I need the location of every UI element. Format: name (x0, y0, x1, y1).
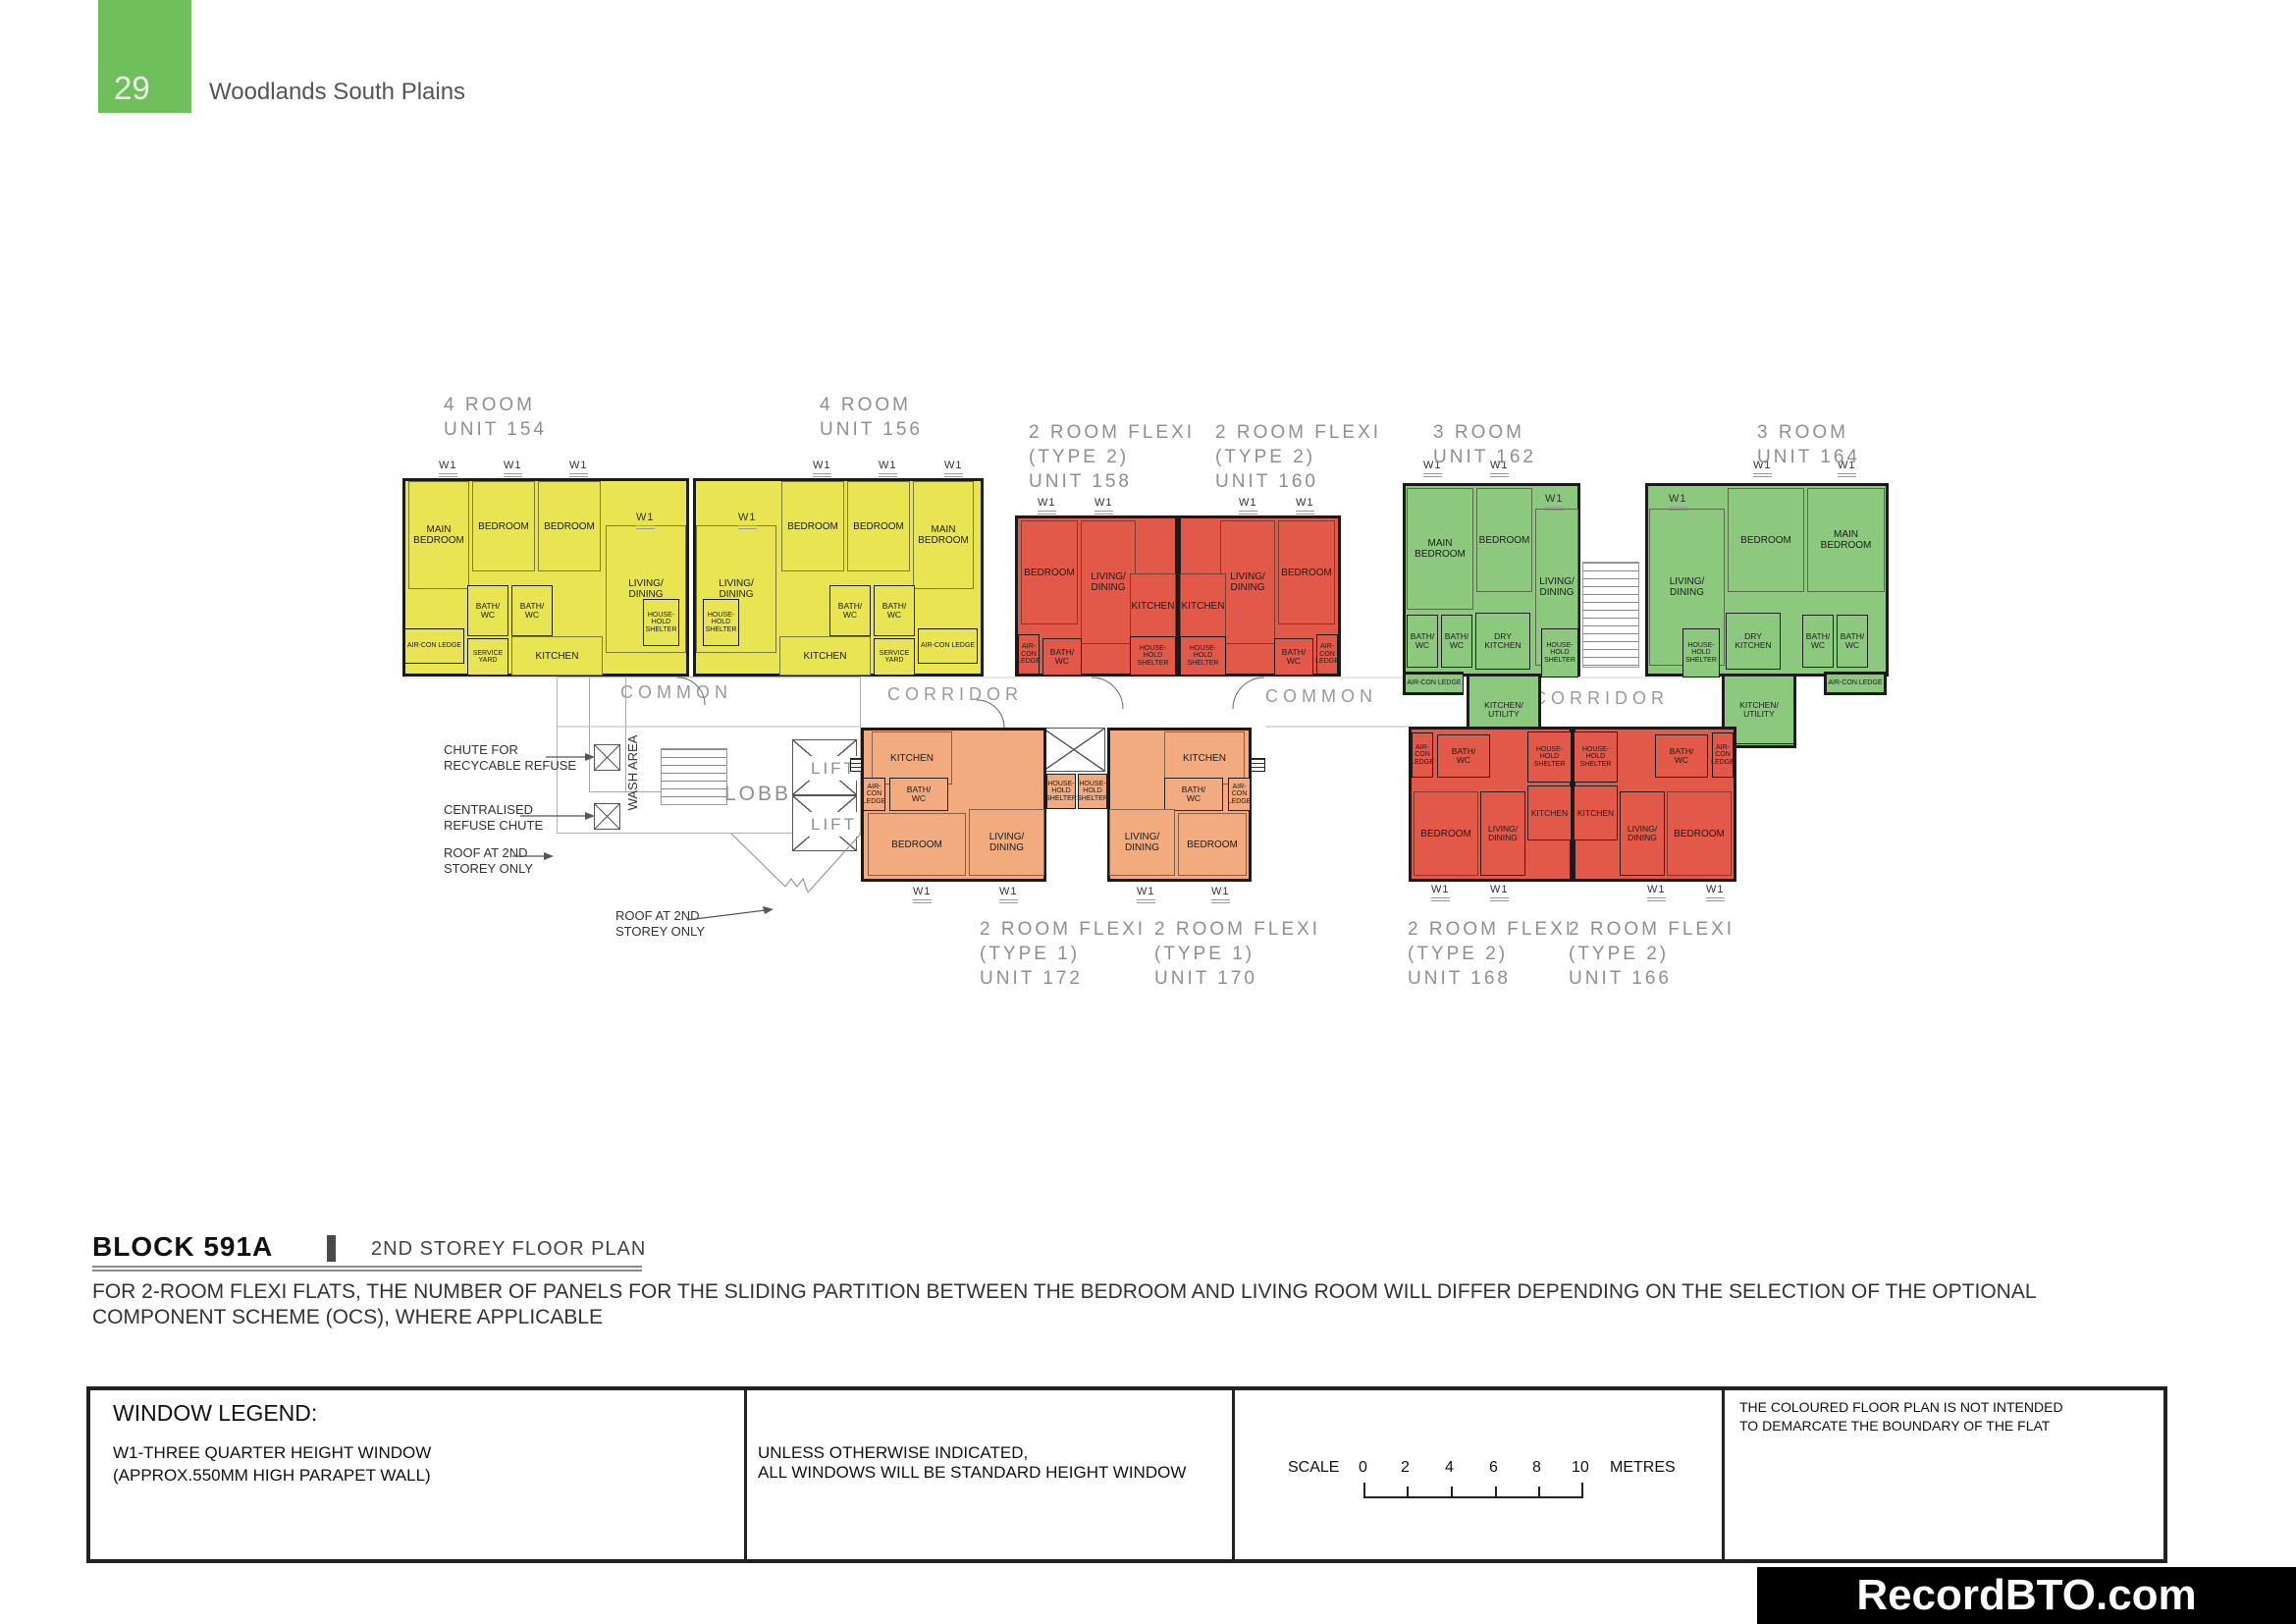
unit-156-room-bedroom: BEDROOM (781, 481, 844, 571)
floor-plan: COMMON CORRIDOR COMMON CORRIDOR WASH ARE… (0, 0, 2296, 1080)
scale-bar-tick (1495, 1487, 1497, 1498)
window-marker-w1: W1 (1669, 493, 1687, 511)
unit-162-room-dry-kitchen: DRY KITCHEN (1475, 613, 1530, 670)
unit-166-room-house-hold-shelter: HOUSE- HOLD SHELTER (1574, 731, 1618, 783)
unit-164-room-bedroom: BEDROOM (1728, 488, 1804, 592)
unit-168-room-kitchen: KITCHEN (1527, 785, 1572, 840)
unit-158-label: 2 ROOM FLEXI (TYPE 2) UNIT 158 (1029, 420, 1195, 494)
window-marker-w1: W1 (1431, 884, 1450, 901)
unit-170-room-bedroom: BEDROOM (1178, 813, 1247, 876)
scale-bar (1363, 1483, 1583, 1498)
brochure-page: 29 Woodlands South Plains COMMON CORRIDO… (0, 0, 2296, 1624)
unit-156-room-main-bedroom: MAIN BEDROOM (913, 481, 974, 589)
unit-160-room-house-hold-shelter: HOUSE- HOLD SHELTER (1180, 636, 1226, 676)
storey-plan-title: 2ND STOREY FLOOR PLAN (371, 1238, 646, 1261)
unit-172-room-bedroom: BEDROOM (868, 813, 966, 876)
unit-156-room-bath-wc: BATH/ WC (829, 585, 871, 636)
unit-172-room-air-con-ledge: AIR- CON LEDGE (863, 778, 885, 811)
unit-162-room-bedroom: BEDROOM (1476, 488, 1532, 592)
window-marker-w1: W1 (913, 886, 932, 903)
window-marker-w1: W1 (1490, 884, 1509, 901)
scale-bar-tick (1538, 1487, 1540, 1498)
scale-unit: METRES (1610, 1459, 1676, 1477)
scale-tick-label: 0 (1359, 1459, 1367, 1477)
window-marker-w1: W1 (504, 460, 522, 477)
unit-154-room-bedroom: BEDROOM (472, 481, 535, 571)
unit-154-room-bath-wc: BATH/ WC (467, 585, 508, 636)
unit-160-room-bedroom: BEDROOM (1278, 520, 1335, 624)
unit-164-room-dry-kitchen: DRY KITCHEN (1726, 613, 1781, 670)
unit-156-room-kitchen: KITCHEN (779, 636, 871, 676)
window-marker-w1: W1 (1239, 497, 1257, 514)
unit-168-room-house-hold-shelter: HOUSE- HOLD SHELTER (1527, 731, 1572, 783)
unit-160-room-kitchen: KITCHEN (1180, 573, 1226, 638)
window-legend-w1-line2: (APPROX.550MM HIGH PARAPET WALL) (113, 1466, 431, 1486)
watermark-text: RecordBTO.com (1856, 1571, 2196, 1620)
unit-154-room-kitchen: KITCHEN (511, 636, 603, 676)
unit-166-room-living-dining: LIVING/ DINING (1620, 791, 1665, 876)
unit-168-room-bath-wc: BATH/ WC (1437, 734, 1490, 778)
unit-172-room-kitchen: KITCHEN (872, 731, 952, 785)
unit-156-room-house-hold-shelter: HOUSE- HOLD SHELTER (703, 599, 739, 646)
window-marker-w1: W1 (569, 460, 588, 477)
unit-168-room-air-con-ledge: AIR- CON LEDGE (1412, 732, 1433, 778)
window-marker-w1: W1 (944, 460, 963, 477)
unit-154-room-house-hold-shelter: HOUSE- HOLD SHELTER (643, 599, 679, 646)
unit-168-label: 2 ROOM FLEXI (TYPE 2) UNIT 168 (1408, 917, 1574, 991)
unit-170-room-living-dining: LIVING/ DINING (1109, 809, 1175, 876)
unit-162-room-bath-wc: BATH/ WC (1407, 615, 1438, 668)
window-marker-w1: W1 (1296, 497, 1314, 514)
unit-154-room-main-bedroom: MAIN BEDROOM (408, 481, 469, 589)
window-marker-w1: W1 (1211, 886, 1230, 903)
window-marker-w1: W1 (439, 460, 457, 477)
scale-bar-tick (1451, 1487, 1453, 1498)
unit-158-room-air-con-ledge: AIR- CON LEDGE (1018, 634, 1040, 675)
window-marker-w1: W1 (738, 512, 757, 529)
unit-164-room-house-hold-shelter: HOUSE- HOLD SHELTER (1682, 628, 1720, 677)
unit-162-label: 3 ROOM UNIT 162 (1433, 420, 1536, 469)
unit-172-label: 2 ROOM FLEXI (TYPE 1) UNIT 172 (980, 917, 1146, 991)
unit-158-room-bath-wc: BATH/ WC (1042, 638, 1082, 676)
unit-156-room-bedroom: BEDROOM (847, 481, 910, 571)
unit-158-room-house-hold-shelter: HOUSE- HOLD SHELTER (1130, 636, 1176, 676)
window-marker-w1: W1 (1137, 886, 1155, 903)
unit-154-label: 4 ROOM UNIT 154 (444, 393, 547, 442)
unit-172-room-bath-wc: BATH/ WC (889, 778, 948, 811)
unit-156-room-bath-wc: BATH/ WC (874, 585, 915, 636)
unit-158-room-bedroom: BEDROOM (1021, 520, 1078, 624)
unit-156-room-service-yard: SERVICE YARD (874, 638, 915, 676)
window-marker-w1: W1 (999, 886, 1018, 903)
ocs-note: FOR 2-ROOM FLEXI FLATS, THE NUMBER OF PA… (92, 1279, 2154, 1330)
window-marker-w1: W1 (879, 460, 897, 477)
unit-166-room-kitchen: KITCHEN (1574, 785, 1618, 840)
unit-162-room-air-con-ledge: AIR-CON LEDGE (1405, 674, 1464, 693)
window-marker-w1: W1 (1038, 497, 1056, 514)
unit-160-room-bath-wc: BATH/ WC (1274, 638, 1313, 676)
unit-154-room-air-con-ledge: AIR-CON LEDGE (404, 628, 464, 664)
unit-154-room-service-yard: SERVICE YARD (467, 638, 508, 676)
unit-156-room-air-con-ledge: AIR-CON LEDGE (918, 628, 978, 664)
unit-154-room-bedroom: BEDROOM (538, 481, 601, 571)
window-marker-w1: W1 (1706, 884, 1725, 901)
legend-divider (1722, 1386, 1725, 1563)
watermark-banner: RecordBTO.com (1757, 1567, 2296, 1624)
scale-bar-tick (1407, 1487, 1409, 1498)
unit-164-room-main-bedroom: MAIN BEDROOM (1807, 488, 1885, 592)
unit-170-room-kitchen: KITCHEN (1164, 731, 1245, 785)
unit-170-room-air-con-ledge: AIR- CON LEDGE (1228, 778, 1251, 811)
scale-tick-label: 4 (1445, 1459, 1454, 1477)
unit-166-label: 2 ROOM FLEXI (TYPE 2) UNIT 166 (1569, 917, 1735, 991)
unit-170-room-bath-wc: BATH/ WC (1164, 778, 1223, 811)
scale-tick-label: 10 (1572, 1459, 1589, 1477)
block-title: BLOCK 591A (92, 1231, 273, 1263)
window-marker-w1: W1 (1545, 493, 1564, 511)
scale-tick-label: 6 (1489, 1459, 1498, 1477)
window-marker-w1: W1 (1095, 497, 1113, 514)
unit-164-room-bath-wc: BATH/ WC (1837, 615, 1868, 668)
unit-162-room-main-bedroom: MAIN BEDROOM (1407, 488, 1473, 610)
legend-divider (1232, 1386, 1235, 1563)
unit-172-room-house-hold-shelter: HOUSE- HOLD SHELTER (1046, 774, 1076, 809)
window-marker-w1: W1 (1647, 884, 1666, 901)
window-legend-title: WINDOW LEGEND: (113, 1400, 317, 1427)
scale-label: SCALE (1288, 1459, 1339, 1477)
window-marker-w1: W1 (636, 512, 655, 529)
standard-window-note: UNLESS OTHERWISE INDICATED, ALL WINDOWS … (758, 1443, 1186, 1483)
unit-172-room-living-dining: LIVING/ DINING (969, 809, 1044, 876)
scale-tick-label: 2 (1401, 1459, 1410, 1477)
boundary-note: THE COLOURED FLOOR PLAN IS NOT INTENDED … (1739, 1398, 2063, 1435)
scale-tick-label: 8 (1532, 1459, 1541, 1477)
unit-158-room-living-dining: LIVING/ DINING (1081, 520, 1136, 644)
unit-170-room-house-hold-shelter: HOUSE- HOLD SHELTER (1078, 774, 1107, 809)
unit-160-label: 2 ROOM FLEXI (TYPE 2) UNIT 160 (1215, 420, 1381, 494)
unit-170-label: 2 ROOM FLEXI (TYPE 1) UNIT 170 (1154, 917, 1320, 991)
unit-164-label: 3 ROOM UNIT 164 (1757, 420, 1860, 469)
unit-162-room-bath-wc: BATH/ WC (1441, 615, 1472, 668)
unit-166-room-bedroom: BEDROOM (1667, 791, 1732, 876)
unit-162-room-house-hold-shelter: HOUSE- HOLD SHELTER (1541, 628, 1578, 677)
title-separator (327, 1235, 336, 1262)
unit-168-room-living-dining: LIVING/ DINING (1480, 791, 1525, 876)
unit-156-label: 4 ROOM UNIT 156 (820, 393, 923, 442)
unit-168-room-bedroom: BEDROOM (1414, 791, 1478, 876)
unit-160-room-living-dining: LIVING/ DINING (1220, 520, 1275, 644)
unit-158-room-kitchen: KITCHEN (1130, 573, 1176, 638)
unit-166-room-bath-wc: BATH/ WC (1655, 734, 1708, 778)
unit-154-room-bath-wc: BATH/ WC (511, 585, 553, 636)
window-marker-w1: W1 (813, 460, 831, 477)
legend-divider (744, 1386, 747, 1563)
unit-166-room-air-con-ledge: AIR- CON LEDGE (1712, 732, 1734, 778)
window-legend-w1-line1: W1-THREE QUARTER HEIGHT WINDOW (113, 1443, 431, 1463)
unit-164-room-bath-wc: BATH/ WC (1802, 615, 1834, 668)
unit-160-room-air-con-ledge: AIR- CON LEDGE (1316, 634, 1338, 675)
unit-164-room-air-con-ledge: AIR-CON LEDGE (1826, 674, 1885, 693)
title-underline (92, 1266, 642, 1272)
